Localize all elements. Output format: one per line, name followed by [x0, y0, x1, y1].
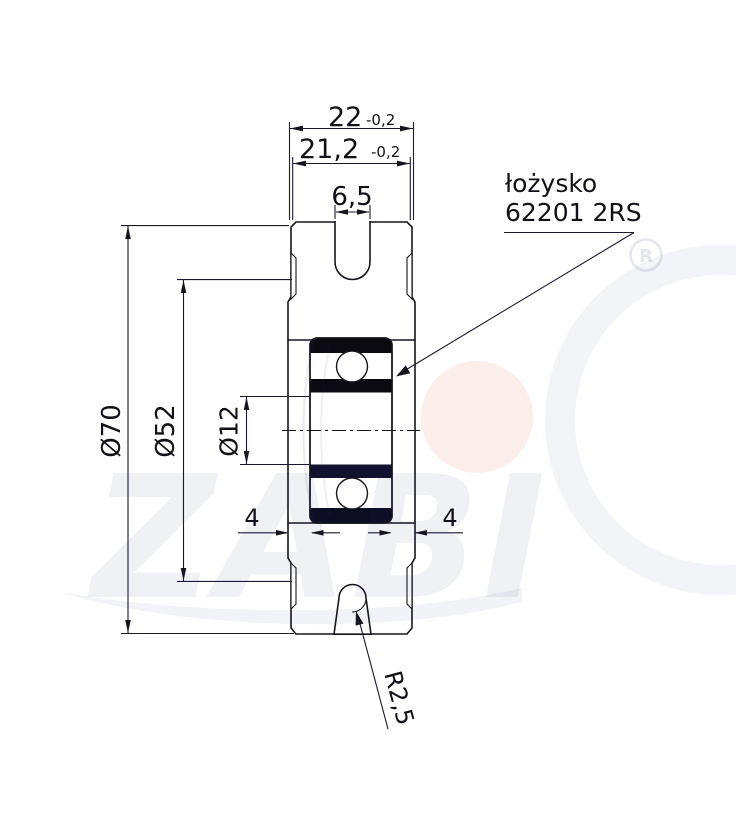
dim-22-value: 22 [328, 102, 362, 133]
dim-d70-value: Ø70 [97, 404, 127, 458]
bearing-ball-top [337, 351, 368, 382]
pulley-cross-section-drawing: 22 -0,2 21,2 -0,2 6,5 Ø70 Ø52 [0, 0, 736, 832]
dim-d12-value: Ø12 [215, 405, 244, 457]
rope-groove [335, 221, 370, 280]
dim-22-tolerance: -0,2 [366, 111, 395, 129]
relief-slot [407, 253, 412, 299]
dim-65-value: 6,5 [331, 182, 372, 212]
bearing-outer-race-bottom [310, 508, 392, 523]
relief-slot [291, 253, 296, 299]
relief-slot [407, 563, 412, 609]
dim-d52-value: Ø52 [151, 404, 181, 458]
bearing-callout: łożysko 62201 2RS [396, 169, 642, 377]
dim-4-left: 4 [244, 504, 259, 532]
dim-212-tolerance: -0,2 [371, 143, 400, 161]
technical-drawing-page: 22 -0,2 21,2 -0,2 6,5 Ø70 Ø52 [0, 0, 736, 832]
callout-line1: łożysko [505, 169, 597, 198]
dimension-outer-diameter: Ø70 [97, 226, 294, 634]
callout-line2: 62201 2RS [505, 198, 642, 227]
dim-4-right: 4 [442, 504, 457, 532]
bearing-ball-bottom [337, 478, 368, 509]
dim-212-value: 21,2 [299, 134, 359, 165]
dimension-groove-width: 6,5 [331, 182, 372, 219]
bearing-inner-race-bottom [310, 465, 392, 479]
relief-slot [291, 563, 296, 609]
dim-r25-value: R2,5 [378, 668, 419, 728]
bottom-notch [334, 585, 371, 635]
